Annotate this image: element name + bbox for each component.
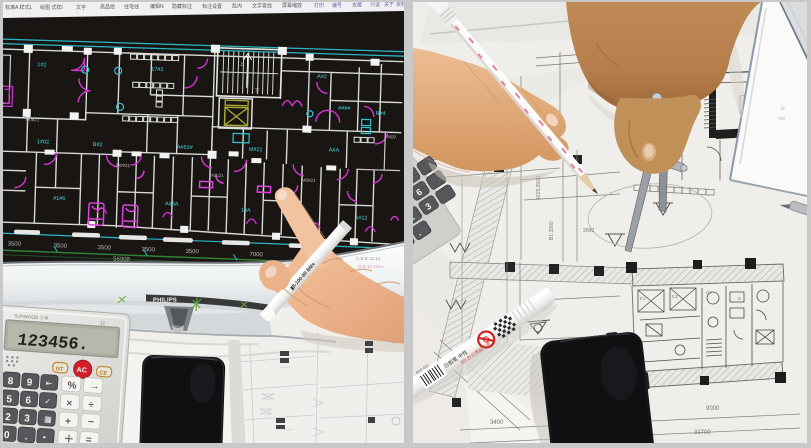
svg-text:⇤: ⇤ xyxy=(45,379,53,388)
svg-text:17#2: 17#2 xyxy=(151,67,163,73)
svg-text:B#2: B#2 xyxy=(93,142,103,148)
svg-text:3400: 3400 xyxy=(490,420,504,426)
svg-text:GT: GT xyxy=(55,366,64,373)
svg-text:A#3A: A#3A xyxy=(165,201,179,207)
svg-text:文字查找: 文字查找 xyxy=(252,3,272,10)
svg-text:G B 12 12±4: G B 12 12±4 xyxy=(358,264,384,269)
svg-text:#1#6: #1#6 xyxy=(53,196,65,202)
svg-text:750: 750 xyxy=(778,116,786,121)
svg-text:下: 下 xyxy=(254,88,259,94)
svg-text:高品绘: 高品绘 xyxy=(100,4,115,11)
svg-text:2000: 2000 xyxy=(583,228,594,234)
svg-text:PHILIPS: PHILIPS xyxy=(153,298,177,304)
svg-text:乱内: 乱内 xyxy=(232,3,242,10)
svg-text:住宅线: 住宅线 xyxy=(124,4,139,11)
svg-text:D2: D2 xyxy=(706,290,712,295)
svg-text:屏幕缩放: 屏幕缩放 xyxy=(282,2,302,9)
svg-text:绘图 式样I: 绘图 式样I xyxy=(40,4,63,11)
svg-text:1#A: 1#A xyxy=(241,208,251,214)
svg-text:关于: 关于 xyxy=(384,1,394,8)
svg-text:A#A: A#A xyxy=(329,147,340,153)
svg-text:####: #### xyxy=(338,106,351,112)
svg-text:4219,2930: 4219,2930 xyxy=(536,176,542,200)
svg-text:1F: 1F xyxy=(780,106,786,111)
svg-text:1#2: 1#2 xyxy=(37,62,46,68)
svg-text:B#4: B#4 xyxy=(376,111,386,117)
svg-text:M#21: M#21 xyxy=(249,147,263,153)
svg-text:B1 2900: B1 2900 xyxy=(549,221,555,240)
svg-text:支援: 支援 xyxy=(352,2,362,9)
svg-text:31700: 31700 xyxy=(694,430,711,436)
svg-text:M0821: M0821 xyxy=(26,117,40,122)
svg-text:9000: 9000 xyxy=(706,406,720,412)
svg-text:✓: ✓ xyxy=(44,397,51,406)
svg-text:M1521: M1521 xyxy=(210,173,224,178)
svg-text:A#12: A#12 xyxy=(355,215,368,221)
svg-text:文字: 文字 xyxy=(76,4,86,11)
svg-text:上: 上 xyxy=(239,61,244,68)
svg-text:→: → xyxy=(89,381,100,393)
svg-text:编辑N: 编辑N xyxy=(150,3,164,10)
svg-text:×: × xyxy=(66,398,73,409)
svg-text:▦: ▦ xyxy=(44,415,52,425)
svg-text:12: 12 xyxy=(100,320,106,325)
svg-text:C B B 12 12: C B B 12 12 xyxy=(356,256,381,261)
svg-text:1#02: 1#02 xyxy=(37,139,49,145)
svg-text:M0921: M0921 xyxy=(116,163,130,168)
svg-text:只读: 只读 xyxy=(370,2,380,9)
svg-text:AC: AC xyxy=(76,367,87,375)
svg-text:M09: M09 xyxy=(387,134,396,139)
svg-text:E1: E1 xyxy=(640,296,646,301)
svg-text:CE: CE xyxy=(99,370,107,377)
svg-text:标注设置: 标注设置 xyxy=(202,3,222,10)
svg-text:−: − xyxy=(88,417,95,428)
svg-text:7000: 7000 xyxy=(249,252,263,258)
svg-text:3500: 3500 xyxy=(8,241,22,247)
svg-text:A#2: A#2 xyxy=(317,74,327,80)
svg-text:A#51#: A#51# xyxy=(177,145,194,152)
svg-text:标准A 样式L: 标准A 样式L xyxy=(5,4,32,11)
svg-text:+: + xyxy=(65,416,72,427)
svg-text:%: % xyxy=(67,380,77,392)
svg-text:3500: 3500 xyxy=(185,249,199,255)
svg-text:编号: 编号 xyxy=(332,2,342,9)
svg-text:E3: E3 xyxy=(672,294,678,299)
svg-text:隐藏标注: 隐藏标注 xyxy=(172,3,192,10)
svg-text:打印: 打印 xyxy=(314,2,324,9)
svg-text:M0921: M0921 xyxy=(302,178,316,183)
svg-text:3500: 3500 xyxy=(97,245,111,251)
svg-text:B: B xyxy=(738,296,741,301)
